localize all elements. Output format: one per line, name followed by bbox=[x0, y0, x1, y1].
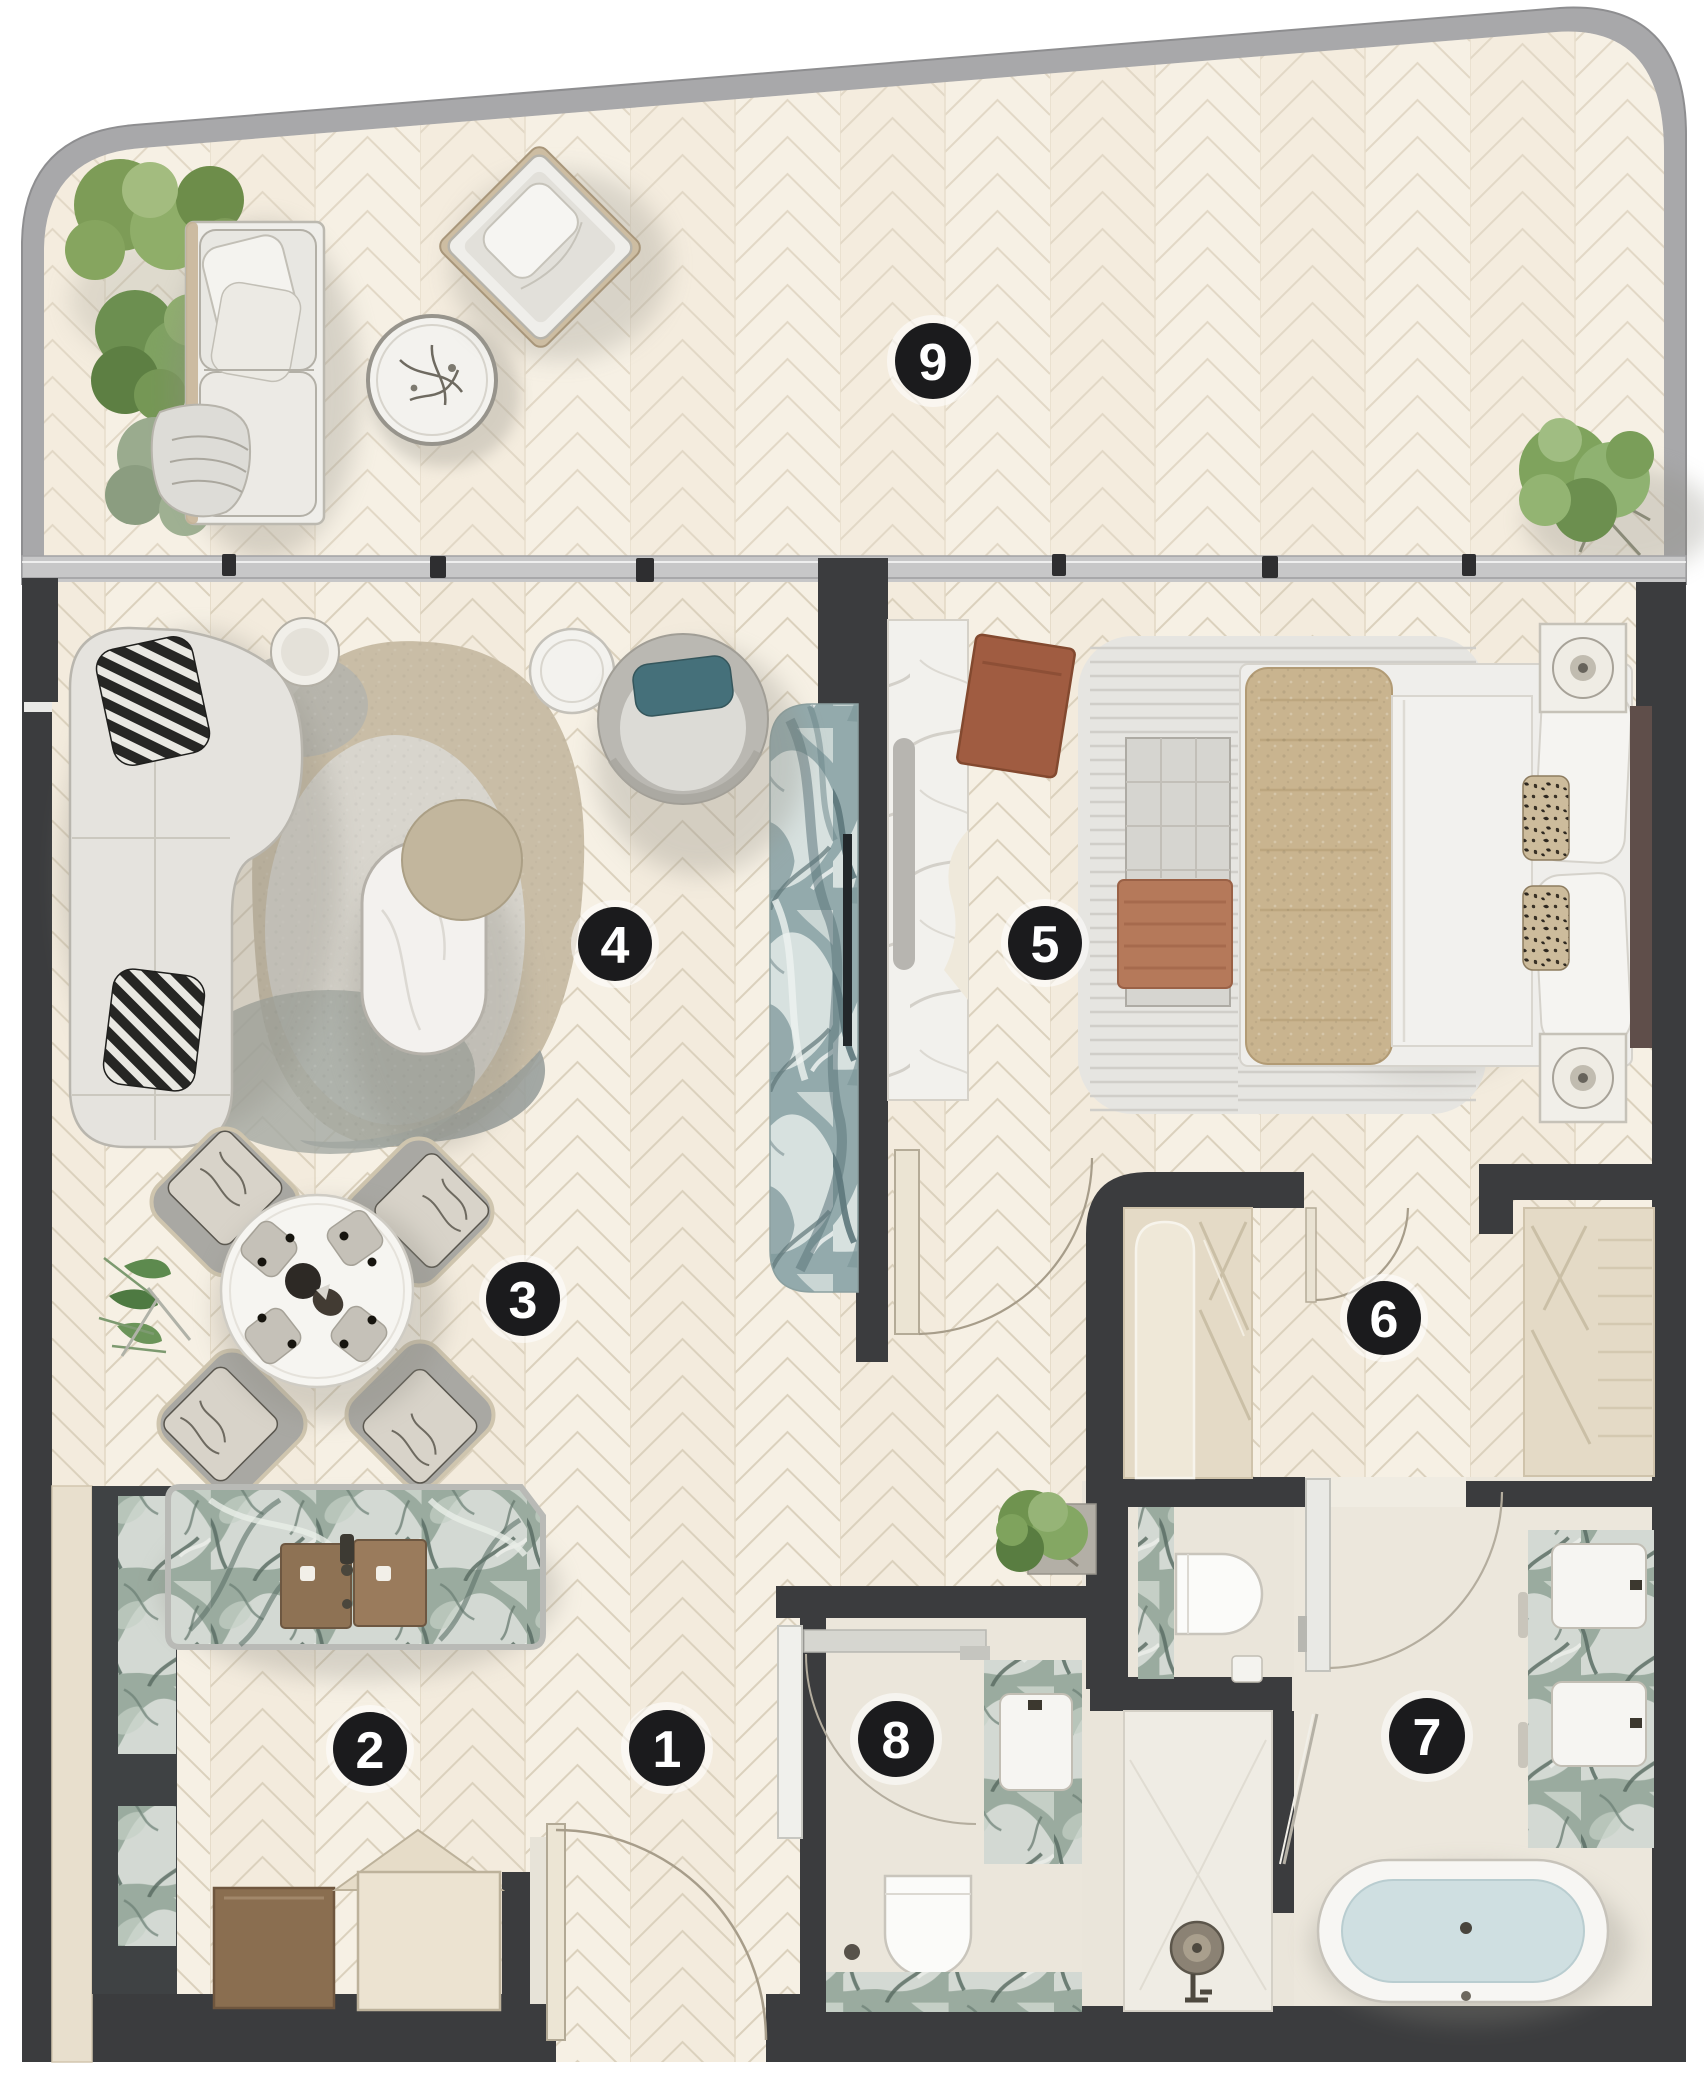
svg-text:5: 5 bbox=[1031, 916, 1060, 974]
svg-text:6: 6 bbox=[1370, 1291, 1399, 1349]
svg-text:3: 3 bbox=[509, 1272, 538, 1330]
svg-text:4: 4 bbox=[601, 917, 630, 975]
svg-text:8: 8 bbox=[882, 1712, 911, 1770]
svg-text:9: 9 bbox=[919, 334, 948, 392]
svg-text:2: 2 bbox=[356, 1722, 385, 1780]
svg-text:7: 7 bbox=[1413, 1709, 1442, 1767]
svg-text:1: 1 bbox=[653, 1721, 682, 1779]
